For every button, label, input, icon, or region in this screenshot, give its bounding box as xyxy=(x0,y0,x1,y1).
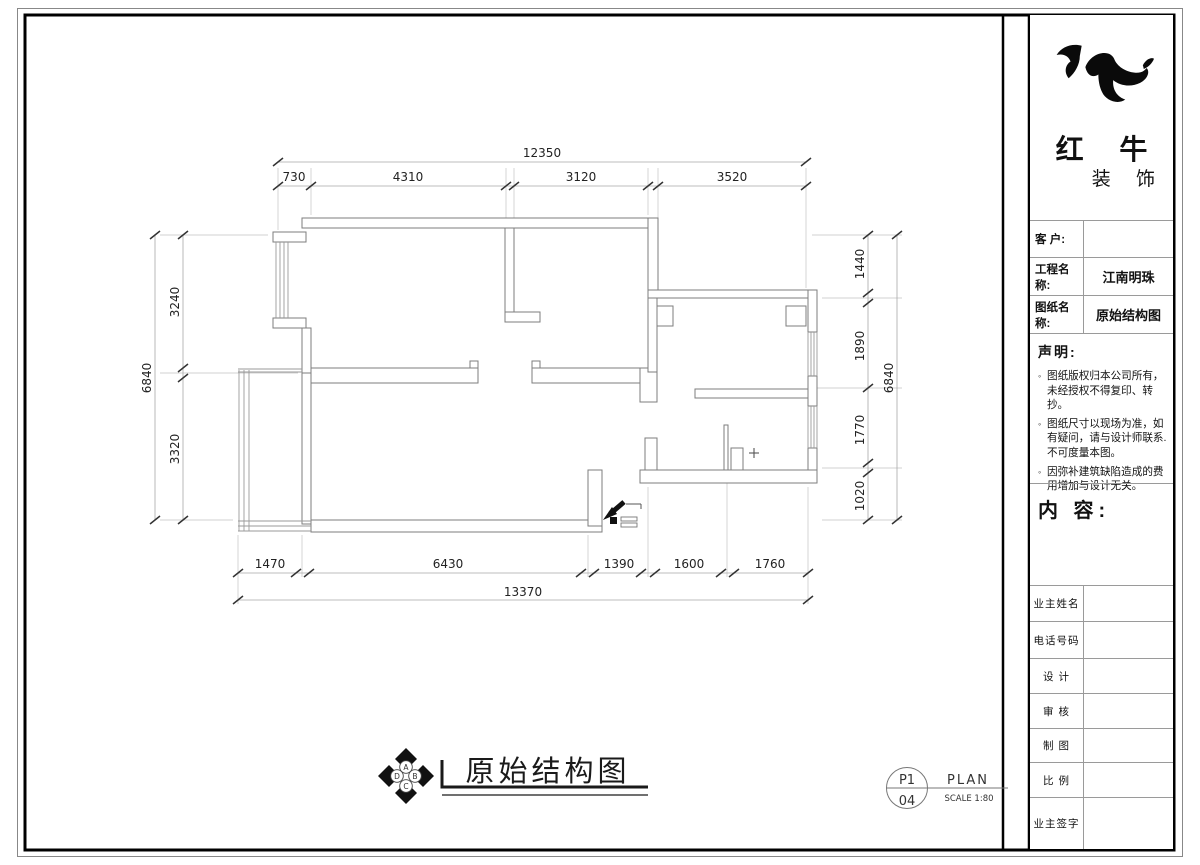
sig-row-owner-sign: 业主签字 xyxy=(1030,797,1173,849)
entry-door-icon xyxy=(603,502,641,527)
sig-value xyxy=(1084,729,1173,762)
field-value: 原始结构图 xyxy=(1084,296,1173,333)
statement-text: 图纸尺寸以现场为准，如有疑问，请与设计师联系.不可度量本图。 xyxy=(1047,417,1167,461)
dim-bottom-total: 13370 xyxy=(504,585,542,599)
extension-lines xyxy=(160,168,902,604)
bullet-icon: ◦ xyxy=(1038,369,1047,413)
walls xyxy=(273,218,817,532)
sheet-page-top: P1 xyxy=(899,773,915,788)
dim-left-seg: 3240 xyxy=(168,287,182,318)
dim-top-seg: 4310 xyxy=(393,170,424,184)
dim-right-seg: 1890 xyxy=(853,331,867,362)
dim-left-seg: 3320 xyxy=(168,434,182,465)
dim-right-seg: 1020 xyxy=(853,481,867,512)
sig-value xyxy=(1084,622,1173,658)
sig-label: 比 例 xyxy=(1030,763,1084,797)
compass-rosette-icon: A B C D xyxy=(378,748,434,804)
title-block-panel: 红 牛 装 饰 客 户: 工程名称: 江南明珠 图纸名称: 原始结构图 声明: … xyxy=(1030,15,1173,849)
content-label: 内 容: xyxy=(1038,500,1110,522)
dim-bottom-seg: 1760 xyxy=(755,557,786,571)
signature-section: 业主姓名 电话号码 设 计 审 核 制 图 比 例 业主签字 xyxy=(1030,585,1173,849)
sig-row-design: 设 计 xyxy=(1030,658,1173,693)
dim-bottom-seg: 1600 xyxy=(674,557,705,571)
sheet-type: PLAN xyxy=(947,773,989,788)
dim-bottom-seg: 1470 xyxy=(255,557,286,571)
dim-top-seg: 730 xyxy=(283,170,306,184)
field-value: 江南明珠 xyxy=(1084,258,1173,295)
statement-heading: 声明: xyxy=(1038,342,1167,362)
sig-label: 业主签字 xyxy=(1030,798,1084,849)
brand-logo-area: 红 牛 装 饰 xyxy=(1030,15,1173,220)
sig-value xyxy=(1084,586,1173,621)
sheet-scale: SCALE 1:80 xyxy=(944,794,993,804)
field-label: 图纸名称: xyxy=(1030,296,1084,333)
field-label: 客 户: xyxy=(1030,221,1084,257)
sig-row-draft: 制 图 xyxy=(1030,728,1173,762)
sig-value xyxy=(1084,763,1173,797)
window-lines xyxy=(238,242,817,531)
plan-title-text: 原始结构图 xyxy=(465,754,630,788)
dim-top-total: 12350 xyxy=(523,146,561,160)
sig-label: 业主姓名 xyxy=(1030,586,1084,621)
field-value xyxy=(1084,221,1173,257)
brand-name-bottom: 装 饰 xyxy=(1092,164,1165,191)
field-row-project-name: 工程名称: 江南明珠 xyxy=(1030,257,1173,295)
brand-name-top: 红 牛 xyxy=(1030,128,1173,168)
bullet-icon: ◦ xyxy=(1038,417,1047,461)
floor-plan-sheet: 12350 730 4310 3120 3520 1470 6430 1390 … xyxy=(0,0,1200,865)
statement-item: ◦ 图纸版权归本公司所有，未经授权不得复印、转抄。 xyxy=(1038,369,1167,413)
sheet-border xyxy=(18,9,1183,857)
plan-title: 原始结构图 xyxy=(442,754,648,795)
sig-label: 设 计 xyxy=(1030,659,1084,693)
sheet-ref: P1 04 PLAN SCALE 1:80 xyxy=(886,768,1008,810)
dim-bottom-seg: 1390 xyxy=(604,557,635,571)
dim-left-total: 6840 xyxy=(140,363,154,394)
dim-bottom-seg: 6430 xyxy=(433,557,464,571)
statement-text: 图纸版权归本公司所有，未经授权不得复印、转抄。 xyxy=(1047,369,1167,413)
statement-section: 声明: ◦ 图纸版权归本公司所有，未经授权不得复印、转抄。 ◦ 图纸尺寸以现场为… xyxy=(1030,333,1173,483)
sig-value xyxy=(1084,659,1173,693)
project-fields: 客 户: 工程名称: 江南明珠 图纸名称: 原始结构图 xyxy=(1030,220,1173,333)
bull-swoosh-logo-icon xyxy=(1052,37,1154,125)
field-label: 工程名称: xyxy=(1030,258,1084,295)
svg-text:C: C xyxy=(403,782,408,791)
dim-top-seg: 3120 xyxy=(566,170,597,184)
dim-right-total: 6840 xyxy=(882,363,896,394)
sig-value xyxy=(1084,798,1173,849)
sheet-page-bottom: 04 xyxy=(899,794,916,809)
dim-right-seg: 1440 xyxy=(853,249,867,280)
statement-item: ◦ 图纸尺寸以现场为准，如有疑问，请与设计师联系.不可度量本图。 xyxy=(1038,417,1167,461)
dim-right-seg: 1770 xyxy=(853,415,867,446)
field-row-drawing-name: 图纸名称: 原始结构图 xyxy=(1030,295,1173,333)
svg-text:A: A xyxy=(403,763,409,772)
drain-cross-icon xyxy=(749,448,759,458)
sig-label: 电话号码 xyxy=(1030,622,1084,658)
content-section: 内 容: xyxy=(1030,483,1173,585)
svg-text:B: B xyxy=(412,772,417,781)
field-row-customer: 客 户: xyxy=(1030,220,1173,257)
svg-text:D: D xyxy=(394,772,400,781)
sig-row-phone: 电话号码 xyxy=(1030,621,1173,658)
sig-label: 审 核 xyxy=(1030,694,1084,728)
sig-row-owner-name: 业主姓名 xyxy=(1030,585,1173,621)
sig-value xyxy=(1084,694,1173,728)
dim-top-seg: 3520 xyxy=(717,170,748,184)
sig-row-review: 审 核 xyxy=(1030,693,1173,728)
sig-row-scale: 比 例 xyxy=(1030,762,1173,797)
sig-label: 制 图 xyxy=(1030,729,1084,762)
